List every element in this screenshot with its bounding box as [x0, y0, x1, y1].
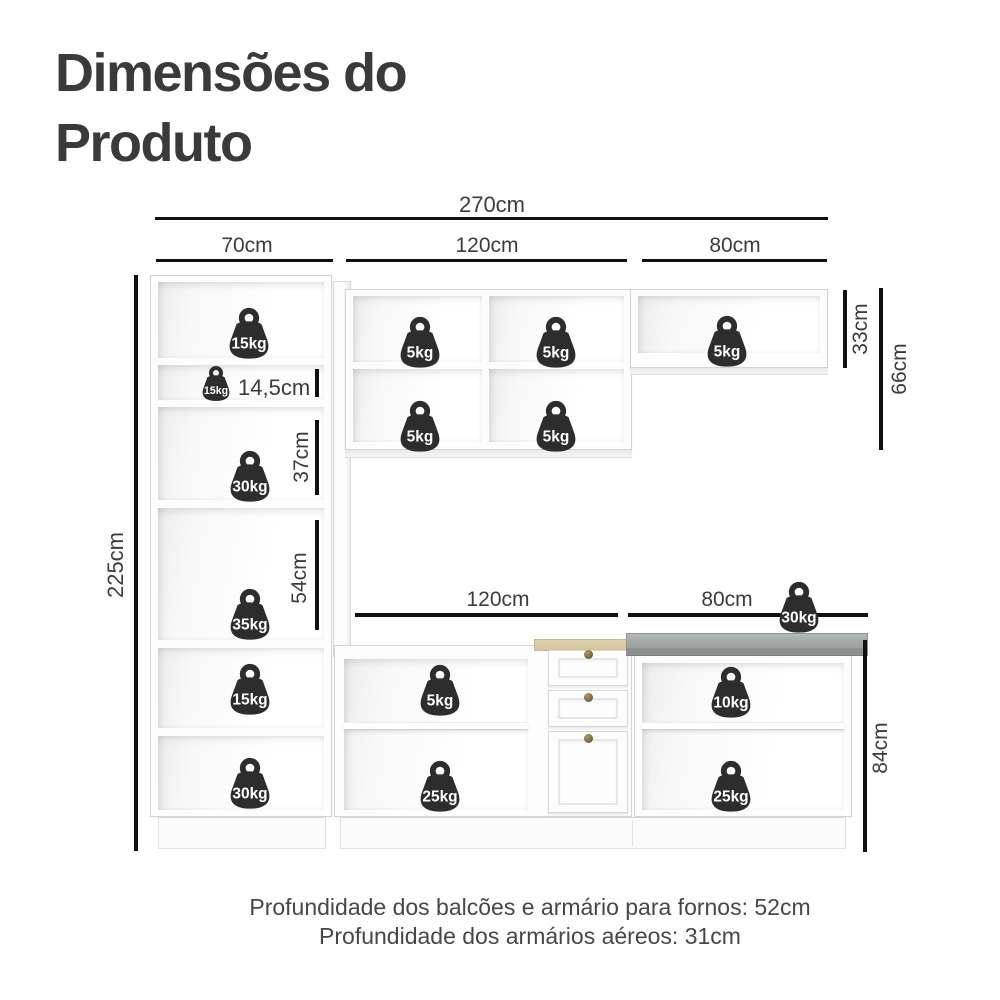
dim-line-wall-right-height: [843, 290, 847, 368]
dim-label-total-height: 225cm: [103, 515, 129, 615]
countertop: [626, 633, 868, 649]
dim-label-base-height: 84cm: [869, 708, 893, 788]
svg-text:15kg: 15kg: [204, 385, 228, 397]
dim-label-total-width: 270cm: [432, 192, 552, 218]
dim-label-left-width: 70cm: [187, 234, 307, 258]
svg-text:30kg: 30kg: [232, 786, 267, 803]
svg-text:5kg: 5kg: [714, 344, 741, 361]
weight-icon: 15kg: [220, 306, 278, 362]
svg-text:5kg: 5kg: [407, 345, 434, 362]
dim-label-niche-37: 37cm: [290, 417, 314, 497]
weight-icon: 5kg: [527, 399, 585, 455]
weight-icon: 5kg: [391, 315, 449, 371]
dim-label-shelf-small: 14,5cm: [238, 375, 310, 401]
dim-line-wall-height: [879, 288, 883, 450]
depth-notes: Profundidade dos balcões e armário para …: [60, 893, 1000, 952]
weight-icon: 30kg: [221, 449, 279, 505]
weight-icon: 35kg: [221, 587, 279, 643]
product-dimensions-diagram: Dimensões do Produto: [0, 0, 1000, 1000]
dim-label-base-right-width: 80cm: [667, 588, 787, 612]
base-middle-shelf: [344, 722, 528, 730]
weight-icon: 5kg: [527, 315, 585, 371]
drawer-1-knob: [584, 650, 593, 659]
dim-line-total-height: [134, 275, 138, 851]
dim-line-right-width: [642, 259, 827, 262]
dim-tick-shelf-small: [315, 369, 319, 397]
dim-label-wall-height: 66cm: [888, 329, 912, 409]
svg-text:15kg: 15kg: [232, 692, 267, 709]
dim-line-left-width: [156, 259, 333, 262]
weight-icon: 25kg: [411, 759, 469, 815]
dim-label-base-middle-width: 120cm: [438, 588, 558, 612]
weight-icon: 25kg: [702, 759, 760, 815]
countertop-edge: [626, 649, 868, 656]
svg-text:30kg: 30kg: [781, 610, 816, 627]
page-title-line2: Produto: [55, 108, 525, 178]
weight-icon: 5kg: [411, 663, 469, 719]
drawer-1-panel: [558, 658, 618, 678]
svg-text:5kg: 5kg: [543, 345, 570, 362]
svg-text:25kg: 25kg: [422, 789, 457, 806]
dim-label-right-width: 80cm: [675, 234, 795, 258]
plinth-seam: [632, 820, 633, 846]
drawer-3-panel: [558, 739, 618, 805]
drawer-3-knob: [584, 734, 593, 743]
dim-line-base-middle-width: [355, 613, 618, 617]
weight-icon: 5kg: [698, 314, 756, 370]
dim-line-niche-37: [315, 420, 319, 495]
depth-note-wall: Profundidade dos armários aéreos: 31cm: [60, 922, 1000, 951]
svg-text:5kg: 5kg: [543, 429, 570, 446]
dim-line-base-height: [863, 640, 867, 852]
base-right-shelf: [642, 722, 844, 730]
dim-label-wall-right-height: 33cm: [849, 289, 873, 369]
page-title-line1: Dimensões do: [55, 38, 525, 108]
svg-text:30kg: 30kg: [232, 479, 267, 496]
svg-text:5kg: 5kg: [427, 693, 454, 710]
weight-icon: 30kg: [221, 756, 279, 812]
svg-text:25kg: 25kg: [713, 789, 748, 806]
weight-icon: 5kg: [391, 399, 449, 455]
weight-icon: 10kg: [702, 665, 760, 721]
svg-text:10kg: 10kg: [713, 695, 748, 712]
dim-line-niche-54: [315, 520, 319, 630]
dim-line-middle-width: [346, 259, 627, 262]
dim-line-base-right-width: [628, 613, 868, 617]
svg-text:5kg: 5kg: [407, 429, 434, 446]
wall-middle-underside: [345, 450, 632, 458]
dim-label-middle-width: 120cm: [427, 234, 547, 258]
weight-icon: 15kg: [221, 662, 279, 718]
tall-cabinet-plinth: [158, 817, 326, 849]
weight-icon: 15kg: [196, 365, 236, 403]
base-plinth: [340, 817, 846, 849]
svg-text:35kg: 35kg: [232, 617, 267, 634]
dim-label-niche-54: 54cm: [288, 538, 312, 618]
depth-note-base: Profundidade dos balcões e armário para …: [60, 893, 1000, 922]
svg-text:15kg: 15kg: [231, 336, 266, 353]
page-title: Dimensões do Produto: [55, 38, 525, 178]
drawer-2-knob: [584, 693, 593, 702]
